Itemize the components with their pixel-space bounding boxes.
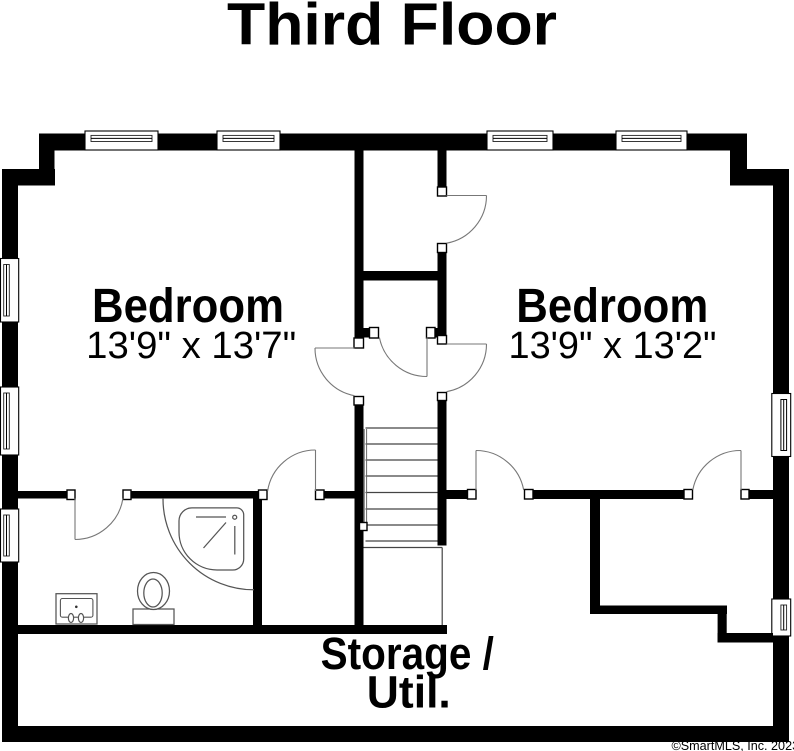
svg-text:13'9" x 13'7": 13'9" x 13'7" (86, 325, 296, 367)
svg-text:13'9" x 13'2": 13'9" x 13'2" (509, 325, 717, 367)
svg-text:©SmartMLS, Inc. 2023: ©SmartMLS, Inc. 2023 (672, 739, 794, 751)
svg-text:Util.: Util. (367, 667, 451, 718)
svg-text:Third Floor: Third Floor (227, 0, 557, 58)
